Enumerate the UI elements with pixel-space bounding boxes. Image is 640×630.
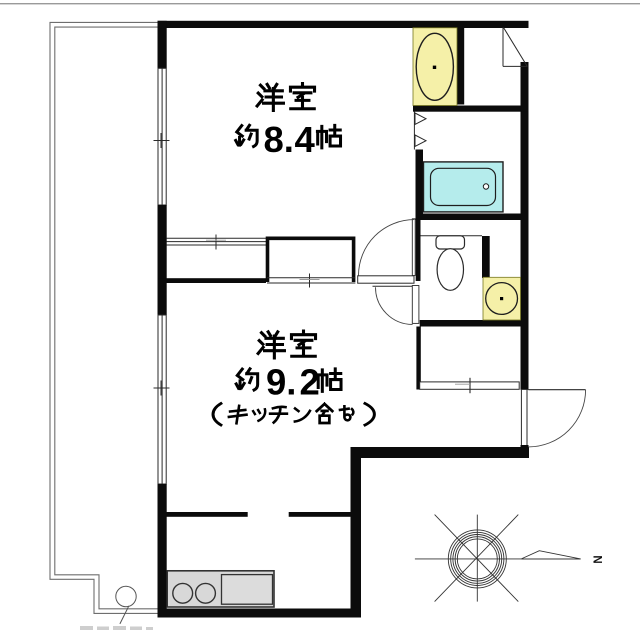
svg-text:N: N	[590, 555, 602, 563]
svg-text:9.: 9.	[266, 361, 296, 402]
svg-text:4: 4	[295, 119, 316, 160]
svg-text:8.: 8.	[264, 119, 294, 160]
